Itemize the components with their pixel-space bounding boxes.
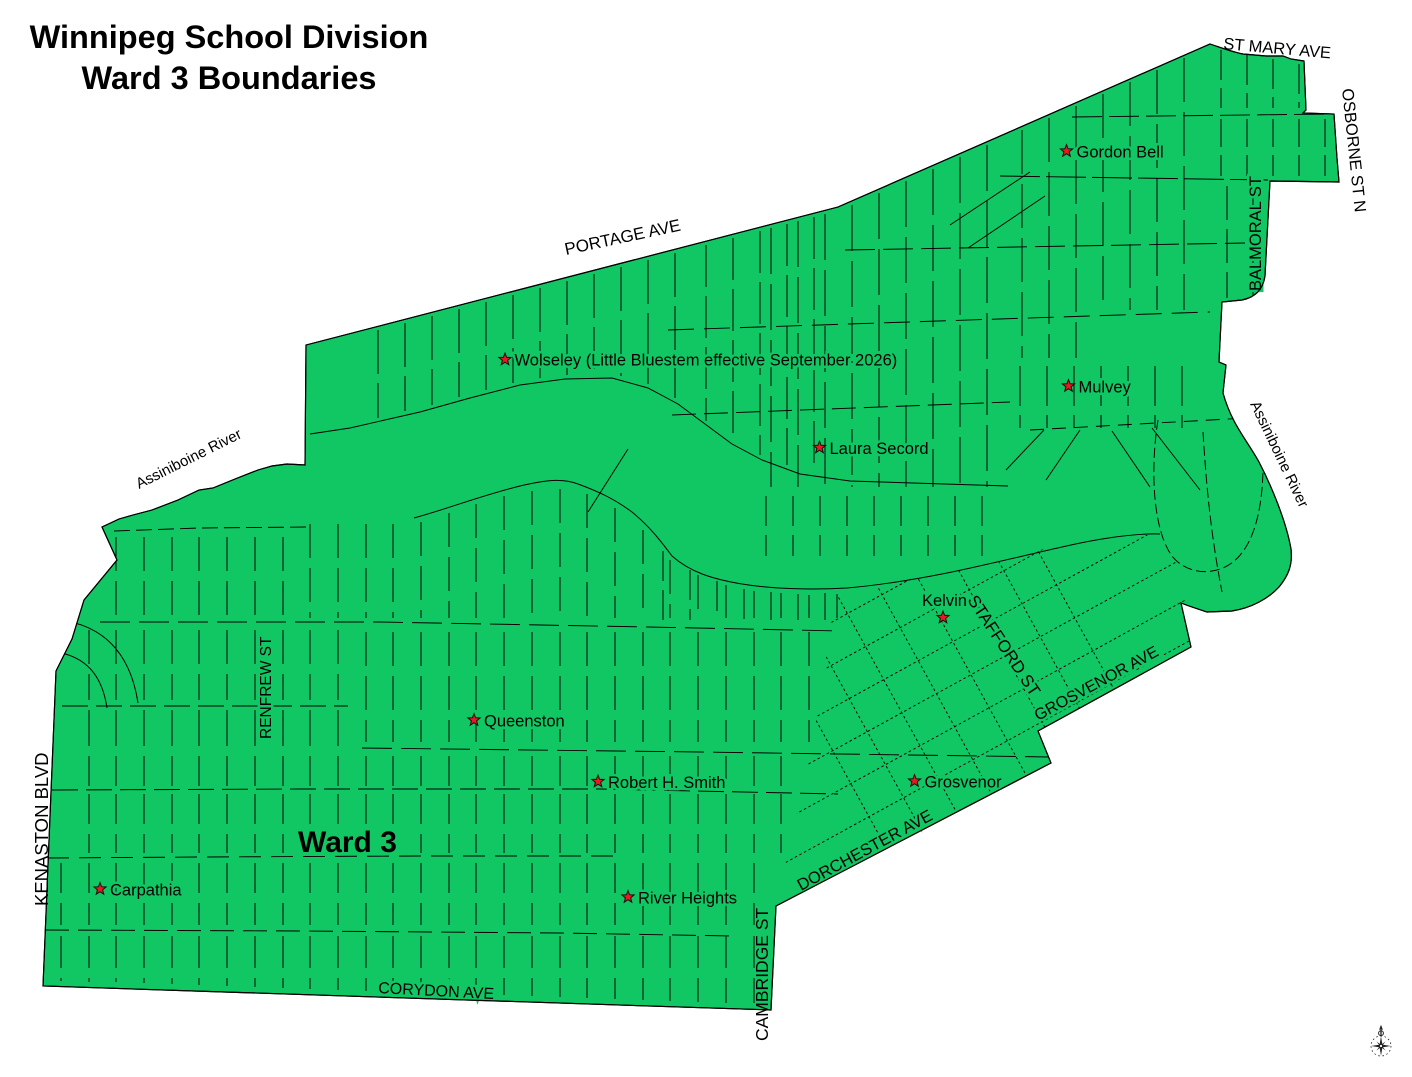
- svg-text:Carpathia: Carpathia: [110, 882, 182, 900]
- svg-text:KENASTON BLVD: KENASTON BLVD: [31, 752, 52, 906]
- svg-text:RENFREW ST: RENFREW ST: [258, 636, 275, 739]
- svg-text:Robert H. Smith: Robert H. Smith: [608, 774, 725, 792]
- svg-text:Ward 3: Ward 3: [298, 826, 397, 859]
- svg-text:Wolseley (Little Bluestem effe: Wolseley (Little Bluestem effective Sept…: [515, 352, 898, 370]
- svg-text:Winnipeg School Division: Winnipeg School Division: [30, 19, 429, 55]
- svg-text:CAMBRIDGE ST: CAMBRIDGE ST: [752, 907, 772, 1041]
- svg-text:Queenston: Queenston: [484, 713, 565, 731]
- svg-text:Laura Secord: Laura Secord: [830, 440, 929, 458]
- svg-text:River Heights: River Heights: [638, 890, 737, 908]
- svg-text:BALMORAL ST: BALMORAL ST: [1247, 176, 1265, 291]
- svg-text:Kelvin: Kelvin: [922, 592, 967, 610]
- svg-text:Ward 3 Boundaries: Ward 3 Boundaries: [82, 60, 377, 96]
- svg-text:Mulvey: Mulvey: [1079, 379, 1132, 397]
- svg-text:Gordon Bell: Gordon Bell: [1077, 144, 1164, 162]
- svg-text:Grosvenor: Grosvenor: [925, 774, 1003, 792]
